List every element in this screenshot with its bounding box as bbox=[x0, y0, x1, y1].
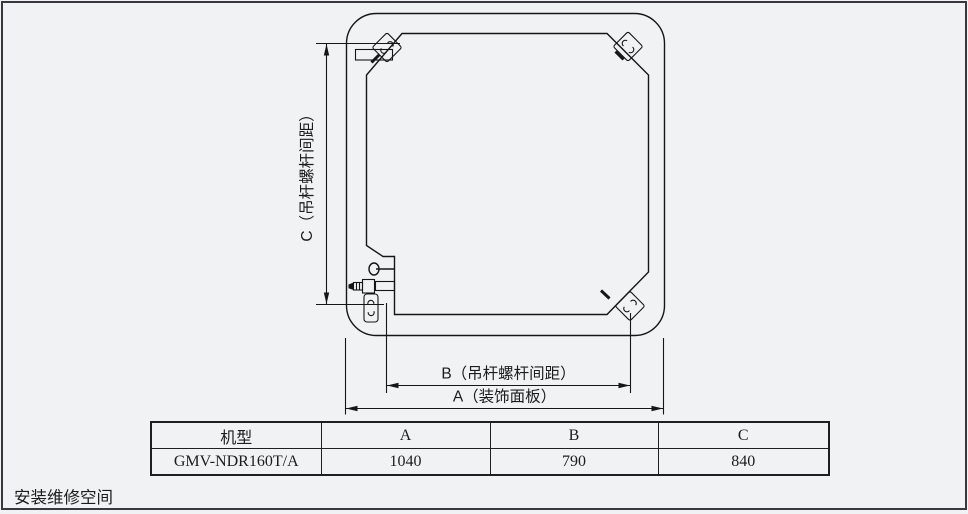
dimension-a-arrow-right bbox=[652, 406, 664, 411]
table-cell-c: 840 bbox=[658, 449, 829, 476]
dimension-c-label: C（吊杆螺杆间距） bbox=[298, 106, 316, 241]
dimension-c-arrow-top bbox=[324, 44, 329, 56]
table-header-a: A bbox=[321, 422, 490, 449]
dimension-a-label: A（装饰面板） bbox=[453, 388, 556, 406]
table-cell-b: 790 bbox=[490, 449, 658, 476]
dimension-b-arrow-right bbox=[619, 383, 631, 388]
dimension-c-arrow-bottom bbox=[324, 293, 329, 305]
table-header-b: B bbox=[490, 422, 658, 449]
unit-body-outline bbox=[356, 34, 649, 315]
dimension-table: 机型 A B C GMV-NDR160T/A 1040 790 840 bbox=[150, 421, 830, 476]
dimension-b-label: B（吊杆螺杆间距） bbox=[441, 365, 575, 383]
table-cell-model: GMV-NDR160T/A bbox=[151, 449, 321, 476]
dimension-b: B（吊杆螺杆间距） bbox=[387, 303, 631, 393]
refrigerant-pipes bbox=[349, 263, 395, 293]
table-cell-a: 1040 bbox=[321, 449, 490, 476]
hanger-bracket-bottom-left bbox=[364, 294, 378, 322]
dimension-b-arrow-left bbox=[387, 383, 399, 388]
table-header-c: C bbox=[658, 422, 829, 449]
pipe-valve-icon bbox=[369, 263, 395, 275]
hanger-bracket-top-right bbox=[613, 32, 643, 62]
section-title: 安装维修空间 bbox=[14, 484, 113, 508]
hanger-bracket-top-left bbox=[372, 33, 402, 63]
dimension-a-arrow-left bbox=[346, 406, 358, 411]
table-header-model: 机型 bbox=[151, 422, 321, 449]
hanger-bracket-bottom-right bbox=[601, 291, 645, 321]
dimension-c: C（吊杆螺杆间距） bbox=[298, 44, 400, 305]
page-frame: C（吊杆螺杆间距） B（吊杆螺杆间距） A（装饰面板） 机型 bbox=[1, 1, 967, 510]
table-row: GMV-NDR160T/A 1040 790 840 bbox=[151, 449, 829, 476]
table-header-row: 机型 A B C bbox=[151, 422, 829, 449]
flare-fitting-icon bbox=[349, 280, 395, 294]
